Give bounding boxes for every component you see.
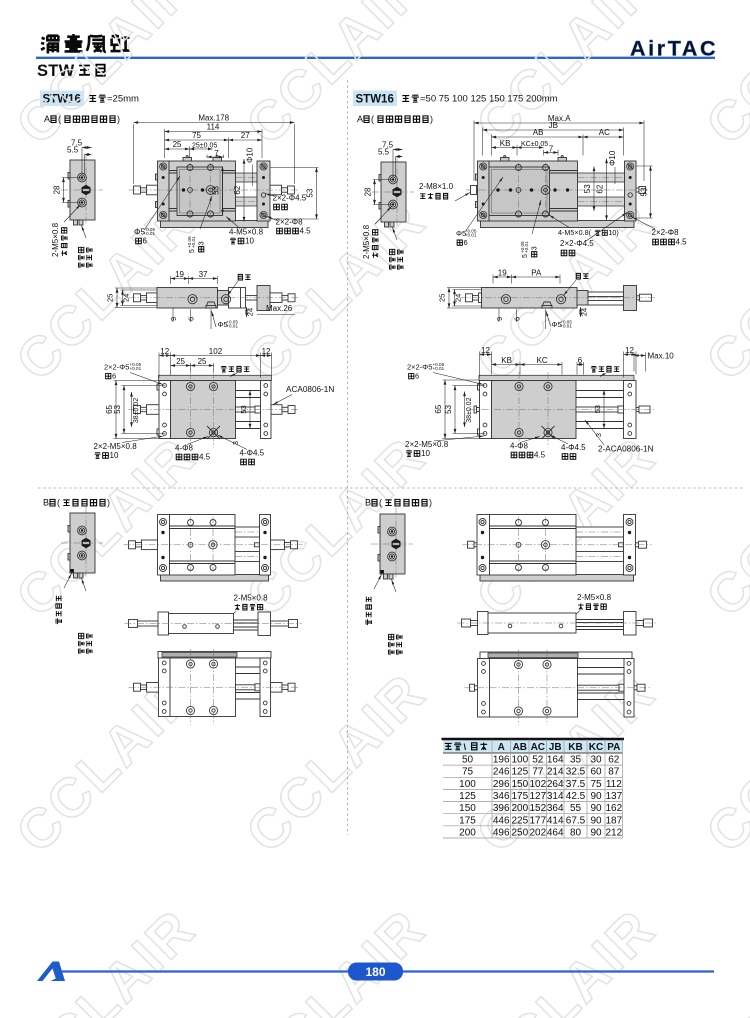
svg-text:25: 25: [173, 140, 182, 149]
svg-text:364: 364: [547, 803, 564, 814]
svg-text:CCLAIR: CCLAIR: [694, 425, 750, 628]
svg-text:24: 24: [246, 308, 255, 316]
svg-text:4.5: 4.5: [676, 238, 688, 247]
svg-text:6: 6: [143, 237, 148, 246]
svg-text:2×2-M5×0.8: 2×2-M5×0.8: [405, 440, 449, 449]
svg-text:65: 65: [434, 404, 443, 413]
svg-text:164: 164: [547, 755, 564, 766]
svg-text:Φ10: Φ10: [246, 147, 255, 163]
svg-text:JB: JB: [549, 742, 562, 753]
svg-text:28: 28: [364, 187, 373, 196]
svg-text:3: 3: [197, 241, 206, 245]
svg-text:2×2-Φ5: 2×2-Φ5: [104, 363, 129, 372]
svg-text:10: 10: [110, 451, 119, 460]
svg-text:STW16: STW16: [356, 94, 394, 106]
svg-text:4-Φ4.5: 4-Φ4.5: [561, 443, 586, 452]
svg-text:7: 7: [549, 144, 554, 153]
svg-text:6: 6: [578, 356, 583, 365]
svg-text:225: 225: [511, 815, 528, 826]
svg-text:2×2-M5×0.8: 2×2-M5×0.8: [94, 442, 138, 451]
svg-text:3: 3: [233, 441, 240, 445]
svg-text:25: 25: [198, 357, 207, 366]
svg-text:38±0.02: 38±0.02: [466, 397, 473, 422]
svg-text:37: 37: [199, 270, 208, 279]
svg-text:AC: AC: [531, 742, 545, 753]
svg-text:90: 90: [590, 827, 602, 838]
svg-text:90: 90: [590, 791, 602, 802]
svg-text:CCLAIR: CCLAIR: [694, 897, 750, 1018]
svg-text:19: 19: [175, 270, 184, 279]
svg-text:2×2-Φ8: 2×2-Φ8: [276, 218, 304, 227]
svg-text:2×2-Φ4.5: 2×2-Φ4.5: [560, 239, 594, 248]
svg-text:KB: KB: [568, 742, 582, 753]
svg-text:10): 10): [608, 228, 618, 237]
svg-text:6: 6: [415, 372, 419, 381]
svg-text:CCLAIR: CCLAIR: [4, 0, 207, 156]
svg-text:100: 100: [459, 779, 476, 790]
svg-text:2×2-Φ4.5: 2×2-Φ4.5: [273, 194, 307, 203]
svg-text:AC: AC: [599, 128, 610, 137]
svg-text:Max.178: Max.178: [198, 114, 229, 123]
svg-text:10: 10: [245, 237, 254, 246]
svg-text:4-Φ4.5: 4-Φ4.5: [240, 449, 265, 458]
svg-text:62: 62: [596, 184, 605, 193]
svg-text:214: 214: [547, 767, 564, 778]
svg-text:2-M5×0.8: 2-M5×0.8: [362, 224, 371, 259]
svg-text:53: 53: [593, 405, 602, 413]
svg-text:4-Φ8: 4-Φ8: [510, 442, 528, 451]
svg-text:150: 150: [459, 803, 476, 814]
svg-text:90: 90: [590, 815, 602, 826]
svg-text:2-M5×0.8: 2-M5×0.8: [577, 593, 612, 602]
svg-text:28: 28: [53, 185, 62, 194]
svg-text:52: 52: [532, 755, 544, 766]
svg-text:53: 53: [583, 184, 592, 193]
svg-text:CCLAIR: CCLAIR: [694, 661, 750, 864]
svg-text:CCLAIR: CCLAIR: [464, 0, 667, 156]
svg-text:9: 9: [169, 317, 178, 321]
svg-text:38±0.02: 38±0.02: [133, 398, 140, 423]
svg-text:KB: KB: [500, 139, 511, 148]
svg-text:396: 396: [493, 803, 510, 814]
svg-text:(: (: [58, 114, 61, 124]
svg-text:CCLAIR: CCLAIR: [4, 897, 207, 1018]
svg-text:53: 53: [306, 188, 315, 197]
svg-text:53: 53: [444, 404, 453, 413]
svg-text:2-M5×0.8: 2-M5×0.8: [51, 222, 60, 257]
svg-text:4.5: 4.5: [534, 451, 546, 460]
svg-text:246: 246: [493, 767, 510, 778]
svg-text:6: 6: [112, 372, 116, 381]
svg-text:90: 90: [590, 803, 602, 814]
svg-text:+0.01: +0.01: [191, 236, 196, 248]
svg-text:+0.01: +0.01: [560, 324, 572, 329]
svg-text:446: 446: [493, 815, 510, 826]
svg-text:177: 177: [529, 815, 546, 826]
svg-text:264: 264: [547, 779, 564, 790]
svg-text:CCLAIR: CCLAIR: [464, 897, 667, 1018]
svg-text:=50 75 100 125 150 175 200mm: =50 75 100 125 150 175 200mm: [420, 94, 558, 105]
svg-text:CCLAIR: CCLAIR: [694, 189, 750, 392]
svg-text:+0.01: +0.01: [130, 366, 142, 371]
svg-text:KB: KB: [501, 356, 512, 365]
svg-text:+0.01: +0.01: [524, 241, 529, 253]
svg-text:+0.01: +0.01: [465, 233, 477, 238]
svg-text:414: 414: [547, 815, 564, 826]
svg-text:): ): [117, 114, 120, 124]
svg-text:2-ACA0806-1N: 2-ACA0806-1N: [598, 445, 654, 454]
svg-text:75: 75: [192, 131, 201, 140]
svg-text:=25mm: =25mm: [107, 94, 139, 105]
svg-text:4-M5×0.8: 4-M5×0.8: [229, 228, 264, 237]
svg-text:125: 125: [511, 767, 528, 778]
svg-text:152: 152: [529, 803, 546, 814]
svg-text:KC±0.05: KC±0.05: [521, 141, 548, 148]
svg-text:): ): [107, 498, 110, 508]
svg-text:62: 62: [233, 185, 242, 194]
svg-text:53: 53: [239, 405, 248, 413]
svg-text:55: 55: [570, 803, 582, 814]
svg-text:5: 5: [522, 254, 529, 258]
svg-text:9: 9: [495, 317, 504, 321]
svg-text:Max.26: Max.26: [266, 304, 293, 313]
svg-text:202: 202: [529, 827, 546, 838]
svg-text:80: 80: [570, 827, 582, 838]
svg-text:24: 24: [121, 294, 130, 302]
svg-text:346: 346: [493, 791, 510, 802]
svg-text:KC: KC: [537, 356, 548, 365]
svg-text:25: 25: [438, 294, 447, 302]
svg-text:77: 77: [532, 767, 544, 778]
svg-text:+0.01: +0.01: [433, 366, 445, 371]
svg-text:B: B: [365, 498, 371, 508]
svg-text:200: 200: [511, 803, 528, 814]
svg-text:CCLAIR: CCLAIR: [234, 0, 437, 156]
svg-text:32.5: 32.5: [566, 767, 586, 778]
svg-text:53: 53: [212, 185, 221, 194]
svg-text:PA: PA: [607, 742, 620, 753]
svg-text:53: 53: [113, 404, 122, 413]
svg-text:125: 125: [459, 791, 476, 802]
svg-text:175: 175: [459, 815, 476, 826]
svg-text:): ): [430, 114, 433, 124]
svg-text:62: 62: [608, 755, 620, 766]
svg-text:196: 196: [493, 755, 510, 766]
svg-text:2×2-Φ5: 2×2-Φ5: [407, 363, 432, 372]
svg-text:6: 6: [464, 238, 468, 247]
svg-text:127: 127: [529, 791, 546, 802]
svg-text:102: 102: [209, 347, 223, 356]
svg-text:4.5: 4.5: [300, 227, 312, 236]
svg-text:87: 87: [608, 767, 620, 778]
svg-text:JB: JB: [549, 121, 558, 130]
svg-text:B: B: [43, 498, 49, 508]
svg-text:53: 53: [640, 187, 649, 196]
svg-text:27: 27: [241, 131, 250, 140]
svg-text:12: 12: [625, 346, 634, 355]
svg-text:A: A: [498, 742, 505, 753]
svg-text:AirTAC: AirTAC: [630, 37, 715, 61]
svg-text:2×2-Φ8: 2×2-Φ8: [652, 228, 680, 237]
svg-text:112: 112: [606, 779, 622, 790]
svg-text:37.5: 37.5: [566, 779, 586, 790]
svg-text:314: 314: [547, 791, 564, 802]
svg-text:7: 7: [214, 149, 219, 158]
svg-text:24: 24: [580, 308, 589, 316]
svg-text:67.5: 67.5: [566, 815, 586, 826]
svg-text:AB: AB: [513, 742, 527, 753]
svg-text:2-M5×0.8: 2-M5×0.8: [234, 594, 269, 603]
svg-text:4-M5×0.8(: 4-M5×0.8(: [558, 228, 592, 237]
svg-text:5.5: 5.5: [378, 148, 390, 157]
svg-text:464: 464: [547, 827, 564, 838]
svg-text:(: (: [379, 498, 382, 508]
svg-text:30: 30: [590, 755, 602, 766]
svg-text:A: A: [44, 114, 50, 124]
svg-text:+0.01: +0.01: [143, 231, 155, 236]
svg-text:5: 5: [189, 249, 196, 253]
svg-text:): ): [429, 498, 432, 508]
svg-text:250: 250: [511, 827, 528, 838]
svg-text:ACA0806-1N: ACA0806-1N: [286, 385, 334, 394]
svg-text:10: 10: [421, 449, 430, 458]
svg-text:75: 75: [590, 779, 602, 790]
svg-text:25: 25: [106, 294, 115, 302]
svg-text:+0.01: +0.01: [226, 324, 238, 329]
svg-text:150: 150: [511, 779, 528, 790]
svg-text:CCLAIR: CCLAIR: [694, 0, 750, 156]
svg-text:PA: PA: [531, 269, 542, 278]
svg-text:200: 200: [459, 827, 476, 838]
svg-text:42.5: 42.5: [566, 791, 586, 802]
svg-text:(: (: [57, 498, 60, 508]
svg-text:AB: AB: [533, 128, 544, 137]
svg-text:25: 25: [176, 357, 185, 366]
svg-text:100: 100: [511, 755, 528, 766]
svg-text:2-M8×1.0: 2-M8×1.0: [419, 182, 454, 191]
svg-text:3: 3: [530, 246, 539, 250]
svg-text:A: A: [357, 114, 363, 124]
svg-text:296: 296: [493, 779, 510, 790]
svg-text:35: 35: [570, 755, 582, 766]
svg-text:187: 187: [605, 815, 622, 826]
svg-text:(: (: [371, 114, 374, 124]
svg-text:180: 180: [365, 965, 385, 979]
svg-text:4-Φ8: 4-Φ8: [175, 444, 193, 453]
svg-text:162: 162: [605, 803, 622, 814]
svg-text:496: 496: [493, 827, 510, 838]
svg-text:212: 212: [605, 827, 622, 838]
svg-text:4.5: 4.5: [199, 453, 211, 462]
svg-text:137: 137: [605, 791, 622, 802]
svg-text:Φ10: Φ10: [608, 150, 617, 166]
svg-text:6: 6: [513, 317, 522, 321]
svg-text:50: 50: [462, 755, 474, 766]
svg-text:60: 60: [590, 767, 602, 778]
svg-text:75: 75: [462, 767, 474, 778]
svg-text:175: 175: [511, 791, 528, 802]
svg-text:114: 114: [207, 123, 220, 132]
svg-text:12: 12: [481, 346, 490, 355]
svg-text:6: 6: [187, 317, 196, 321]
svg-text:24: 24: [453, 294, 462, 302]
svg-text:102: 102: [529, 779, 546, 790]
svg-text:12: 12: [160, 347, 169, 356]
svg-text:12: 12: [262, 347, 271, 356]
svg-text:\: \: [464, 742, 467, 753]
svg-text:Max.10: Max.10: [648, 352, 675, 361]
svg-text:3: 3: [596, 433, 603, 437]
svg-text:KC: KC: [589, 742, 603, 753]
svg-text:19: 19: [498, 269, 507, 278]
svg-text:CCLAIR: CCLAIR: [234, 897, 437, 1018]
svg-text:5.5: 5.5: [67, 146, 79, 155]
